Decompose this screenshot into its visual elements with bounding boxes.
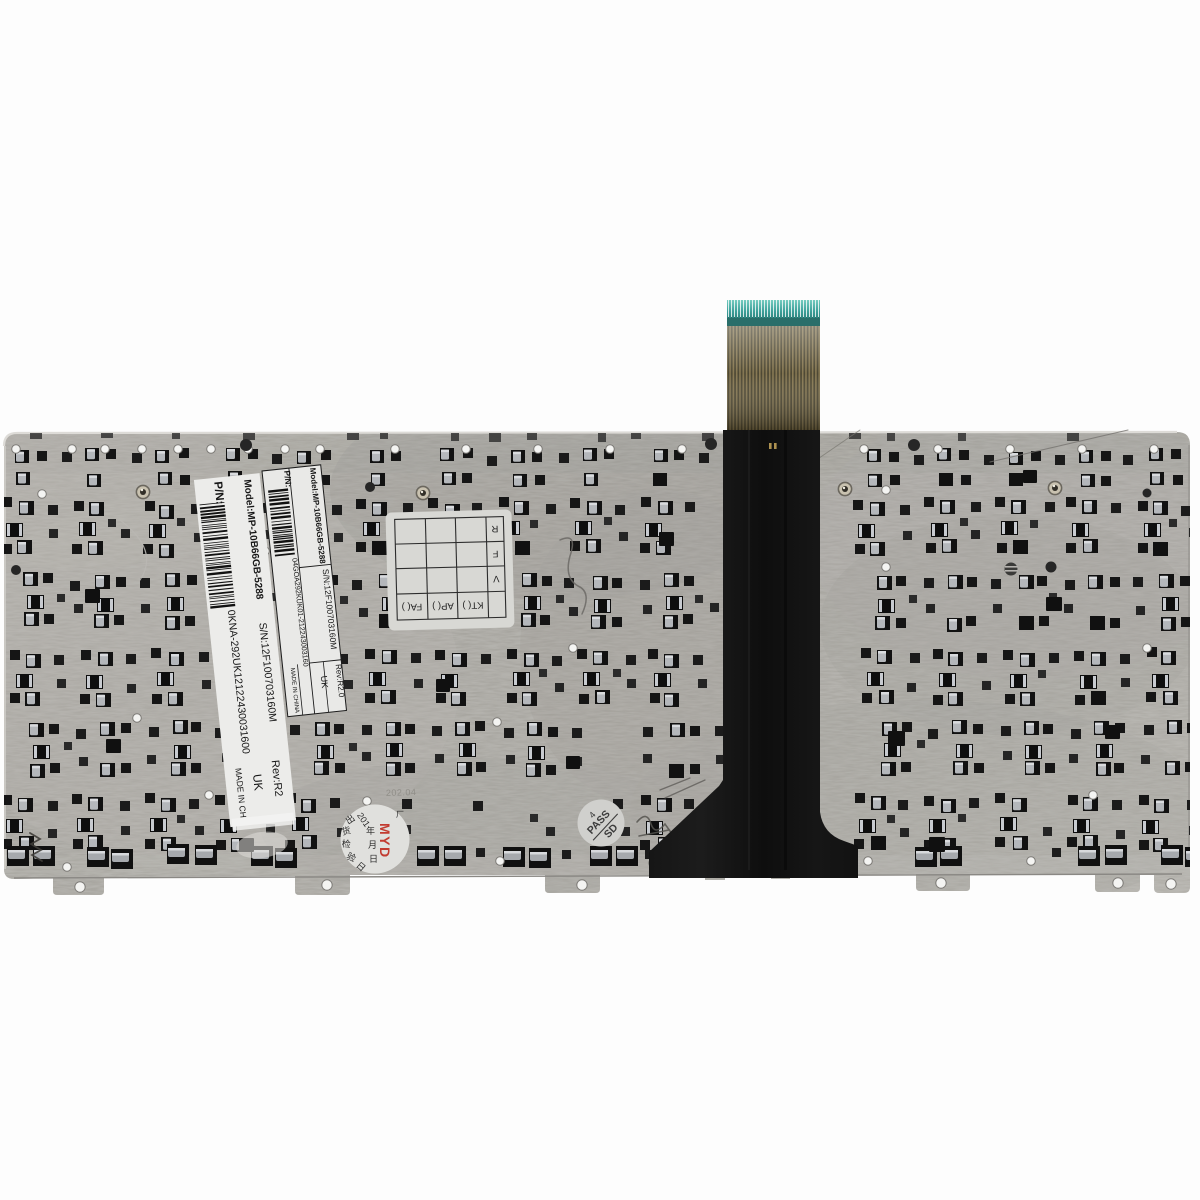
svg-text:V: V — [492, 573, 499, 584]
svg-text:UK: UK — [319, 675, 330, 688]
svg-text:AP( ): AP( ) — [432, 600, 454, 612]
svg-text:P/N:: P/N: — [211, 481, 225, 505]
svg-text:年: 年 — [366, 825, 375, 836]
svg-text:检: 检 — [341, 838, 351, 850]
svg-text:F: F — [492, 548, 498, 559]
svg-text:日: 日 — [369, 854, 378, 864]
svg-text:P/N:: P/N: — [282, 470, 294, 488]
svg-text:R: R — [491, 523, 498, 534]
svg-text:MYD: MYD — [377, 823, 393, 859]
svg-text:202.04: 202.04 — [386, 787, 417, 798]
svg-text:KT( ): KT( ) — [462, 599, 483, 611]
svg-text:厂: 厂 — [396, 810, 404, 819]
svg-text:UK: UK — [250, 773, 266, 791]
svg-text:FA( ): FA( ) — [402, 601, 423, 613]
svg-text:月: 月 — [368, 840, 377, 850]
